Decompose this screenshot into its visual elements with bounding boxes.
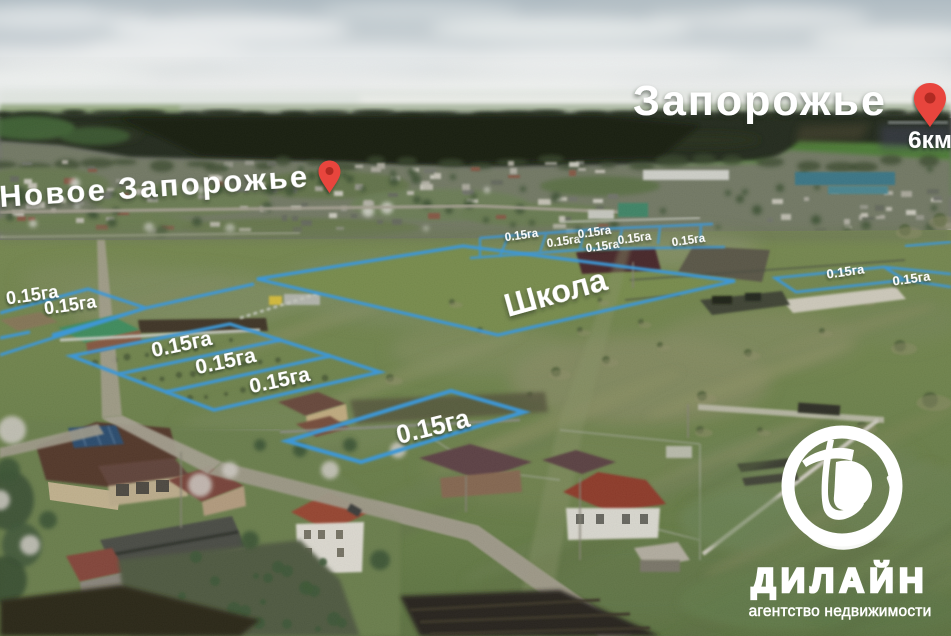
svg-text:Запорожье: Запорожье bbox=[633, 77, 887, 125]
svg-text:агентство недвижимости: агентство недвижимости bbox=[749, 603, 932, 620]
svg-text:6км: 6км bbox=[908, 127, 951, 154]
svg-text:ДИЛАЙН: ДИЛАЙН bbox=[751, 561, 928, 600]
